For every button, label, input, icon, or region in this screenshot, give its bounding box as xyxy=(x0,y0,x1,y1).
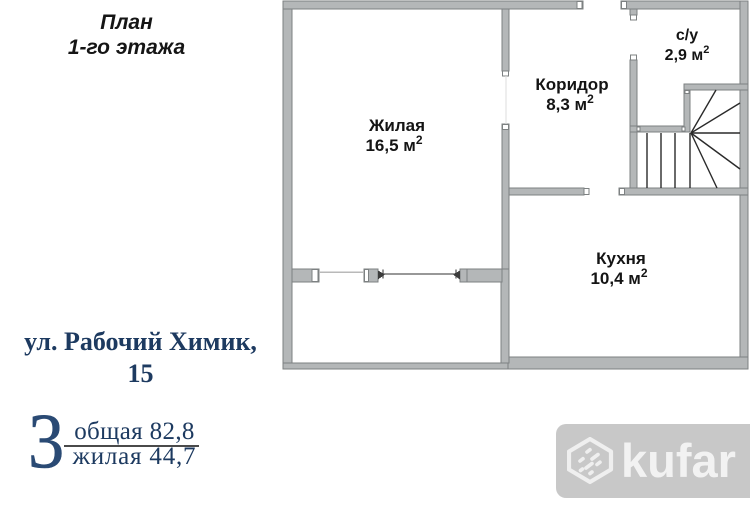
svg-text:8,3 м2: 8,3 м2 xyxy=(546,92,594,114)
svg-text:10,4 м2: 10,4 м2 xyxy=(590,266,647,288)
svg-text:Кухня: Кухня xyxy=(596,249,646,268)
svg-text:с/у: с/у xyxy=(676,27,698,44)
svg-text:16,5 м2: 16,5 м2 xyxy=(365,133,422,155)
svg-text:Коридор: Коридор xyxy=(535,75,608,94)
svg-text:2,9 м2: 2,9 м2 xyxy=(665,44,710,64)
